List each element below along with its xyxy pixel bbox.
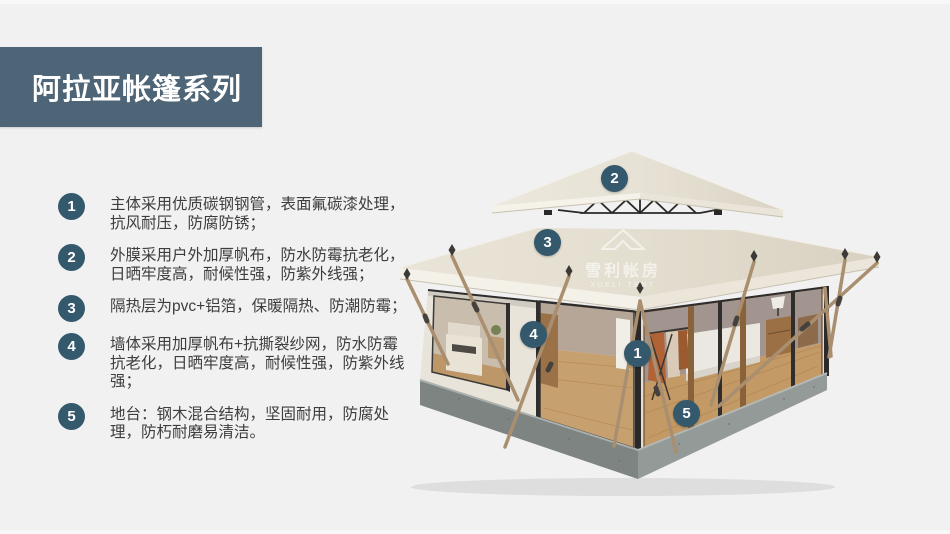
feature-list: 1 主体采用优质碳钢钢管，表面氟碳漆处理，抗风耐压，防腐防锈； 2 外膜采用户外… (58, 196, 410, 457)
feature-text: 地台：钢木混合结构，坚固耐用，防腐处理，防朽耐磨易清洁。 (110, 406, 410, 443)
diagram-badge-4: 4 (520, 321, 547, 348)
feature-text: 主体采用优质碳钢钢管，表面氟碳漆处理，抗风耐压，防腐防锈； (110, 196, 410, 233)
feature-item-2: 2 外膜采用户外加厚帆布，防水防霉抗老化，日晒牢度高，耐候性强，防紫外线强； (58, 247, 410, 284)
slide: 阿拉亚帐篷系列 1 主体采用优质碳钢钢管，表面氟碳漆处理，抗风耐压，防腐防锈； … (0, 0, 950, 534)
feature-item-3: 3 隔热层为pvc+铝箔，保暖隔热、防潮防霉； (58, 298, 410, 322)
title-block: 阿拉亚帐篷系列 (0, 47, 262, 127)
feature-number-badge: 3 (58, 295, 85, 322)
diagram-badge-1: 1 (624, 340, 651, 367)
top-edge-strip (0, 0, 950, 4)
feature-text: 隔热层为pvc+铝箔，保暖隔热、防潮防霉； (110, 298, 410, 317)
feature-number-badge: 2 (58, 244, 85, 271)
feature-number-badge: 5 (58, 403, 85, 430)
ground-shadow (411, 478, 835, 496)
tent-render (388, 138, 893, 498)
diagram-badge-5: 5 (673, 400, 700, 427)
feature-text: 墙体采用加厚帆布+抗撕裂纱网，防水防霉抗老化，日晒牢度高，耐候性强，防紫外线强； (110, 336, 410, 392)
top-roof (492, 151, 783, 217)
page-title: 阿拉亚帐篷系列 (0, 66, 242, 108)
bottom-edge-strip (0, 530, 950, 534)
feature-text: 外膜采用户外加厚帆布，防水防霉抗老化，日晒牢度高，耐候性强，防紫外线强； (110, 247, 410, 284)
feature-item-4: 4 墙体采用加厚帆布+抗撕裂纱网，防水防霉抗老化，日晒牢度高，耐候性强，防紫外线… (58, 336, 410, 392)
diagram-badge-2: 2 (601, 165, 628, 192)
feature-number-badge: 1 (58, 193, 85, 220)
diagram-badge-3: 3 (534, 229, 561, 256)
feature-item-5: 5 地台：钢木混合结构，坚固耐用，防腐处理，防朽耐磨易清洁。 (58, 406, 410, 443)
feature-item-1: 1 主体采用优质碳钢钢管，表面氟碳漆处理，抗风耐压，防腐防锈； (58, 196, 410, 233)
feature-number-badge: 4 (58, 333, 85, 360)
